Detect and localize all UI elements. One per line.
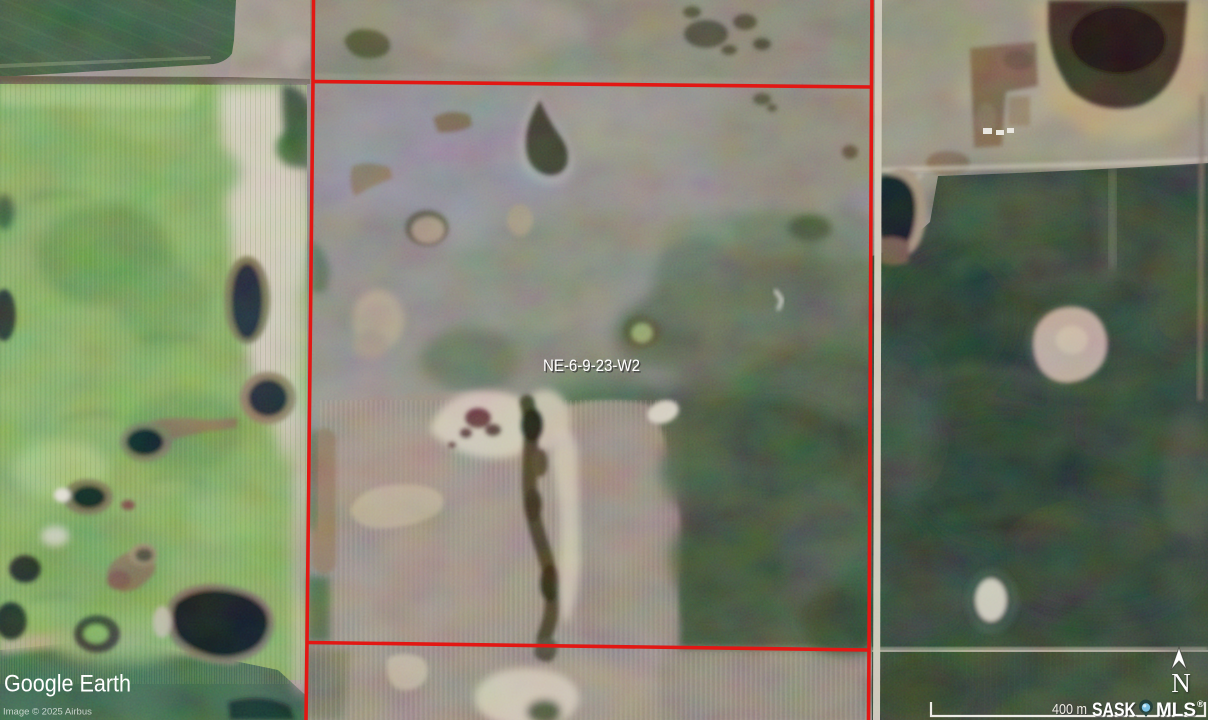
svg-text:NE-6-9-23-W2: NE-6-9-23-W2	[543, 357, 640, 375]
svg-text:N: N	[1171, 668, 1191, 698]
svg-text:®: ®	[1197, 699, 1204, 709]
svg-text:Google Earth: Google Earth	[4, 671, 131, 698]
svg-text:MLS: MLS	[1156, 700, 1196, 720]
svg-text:400 m: 400 m	[1052, 701, 1087, 718]
svg-text:SASK: SASK	[1092, 700, 1136, 720]
svg-text:Image © 2025 Airbus: Image © 2025 Airbus	[3, 707, 92, 718]
